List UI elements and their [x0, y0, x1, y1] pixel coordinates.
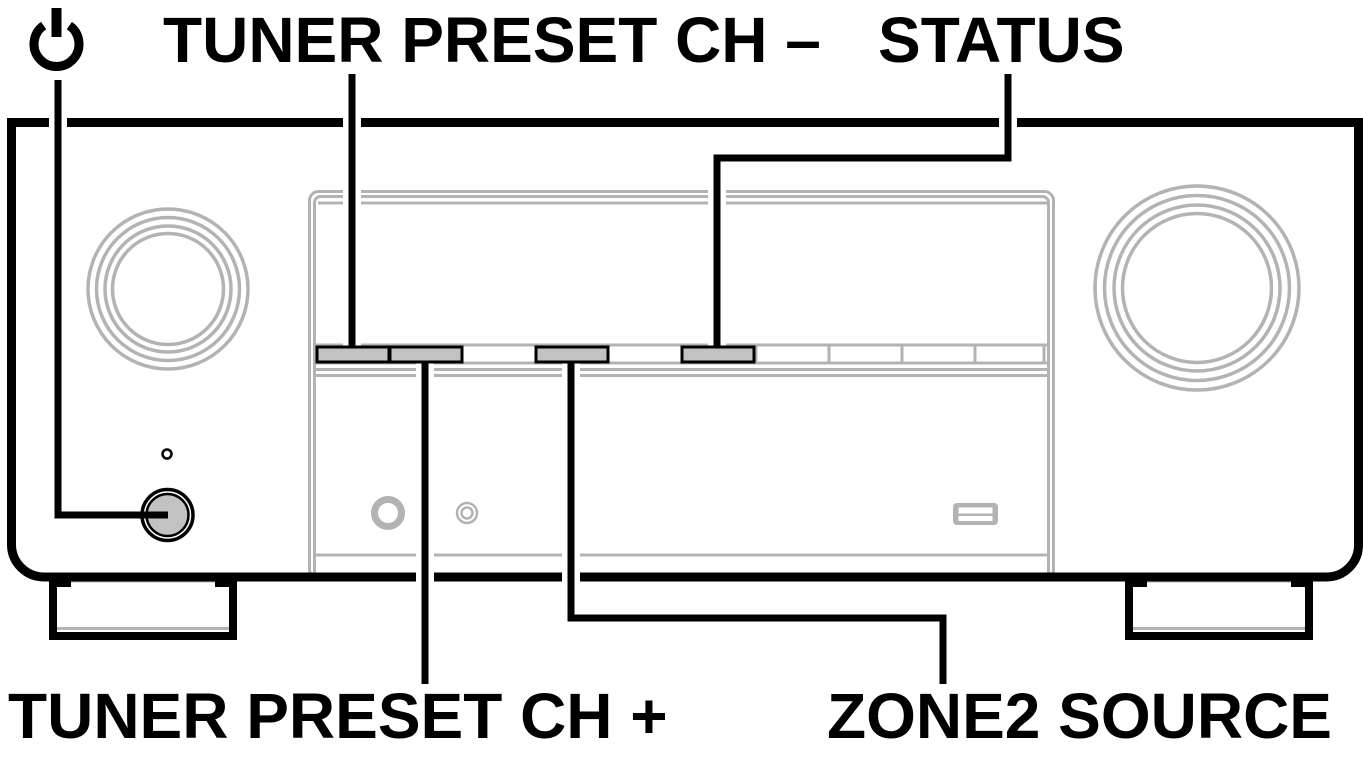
headphones-jack-icon: [375, 500, 402, 527]
diagram-artwork: [0, 0, 1363, 758]
zone2-source-button: [536, 347, 608, 362]
callout-line-zone2-source: [571, 358, 943, 684]
power-standby-icon: [34, 8, 79, 67]
setup-mic-jack-icon: [457, 503, 477, 523]
label-tuner-preset-ch-plus: TUNER PRESET CH +: [8, 684, 668, 748]
status-button: [682, 347, 754, 362]
receiver-front-panel-diagram: TUNER PRESET CH – STATUS TUNER PRESET CH…: [0, 0, 1363, 758]
label-tuner-preset-ch-minus: TUNER PRESET CH –: [163, 8, 821, 72]
tuner-preset-ch-minus-button: [317, 347, 389, 362]
label-status: STATUS: [878, 8, 1125, 72]
right-foot: [1125, 579, 1313, 640]
usb-port-icon: [953, 503, 998, 525]
input-selector-knob: [88, 209, 248, 369]
volume-knob: [1095, 186, 1299, 390]
label-zone2-source: ZONE2 SOURCE: [827, 684, 1332, 748]
plain-button-dividers: [756, 346, 1044, 362]
callout-casings: [58, 74, 1008, 684]
left-foot: [49, 579, 237, 640]
power-led: [163, 450, 172, 459]
faceplate-gray-art: [57, 186, 1305, 629]
highlighted-buttons: [317, 347, 754, 362]
tuner-preset-ch-plus-button: [390, 347, 462, 362]
callout-line-status: [717, 74, 1008, 352]
